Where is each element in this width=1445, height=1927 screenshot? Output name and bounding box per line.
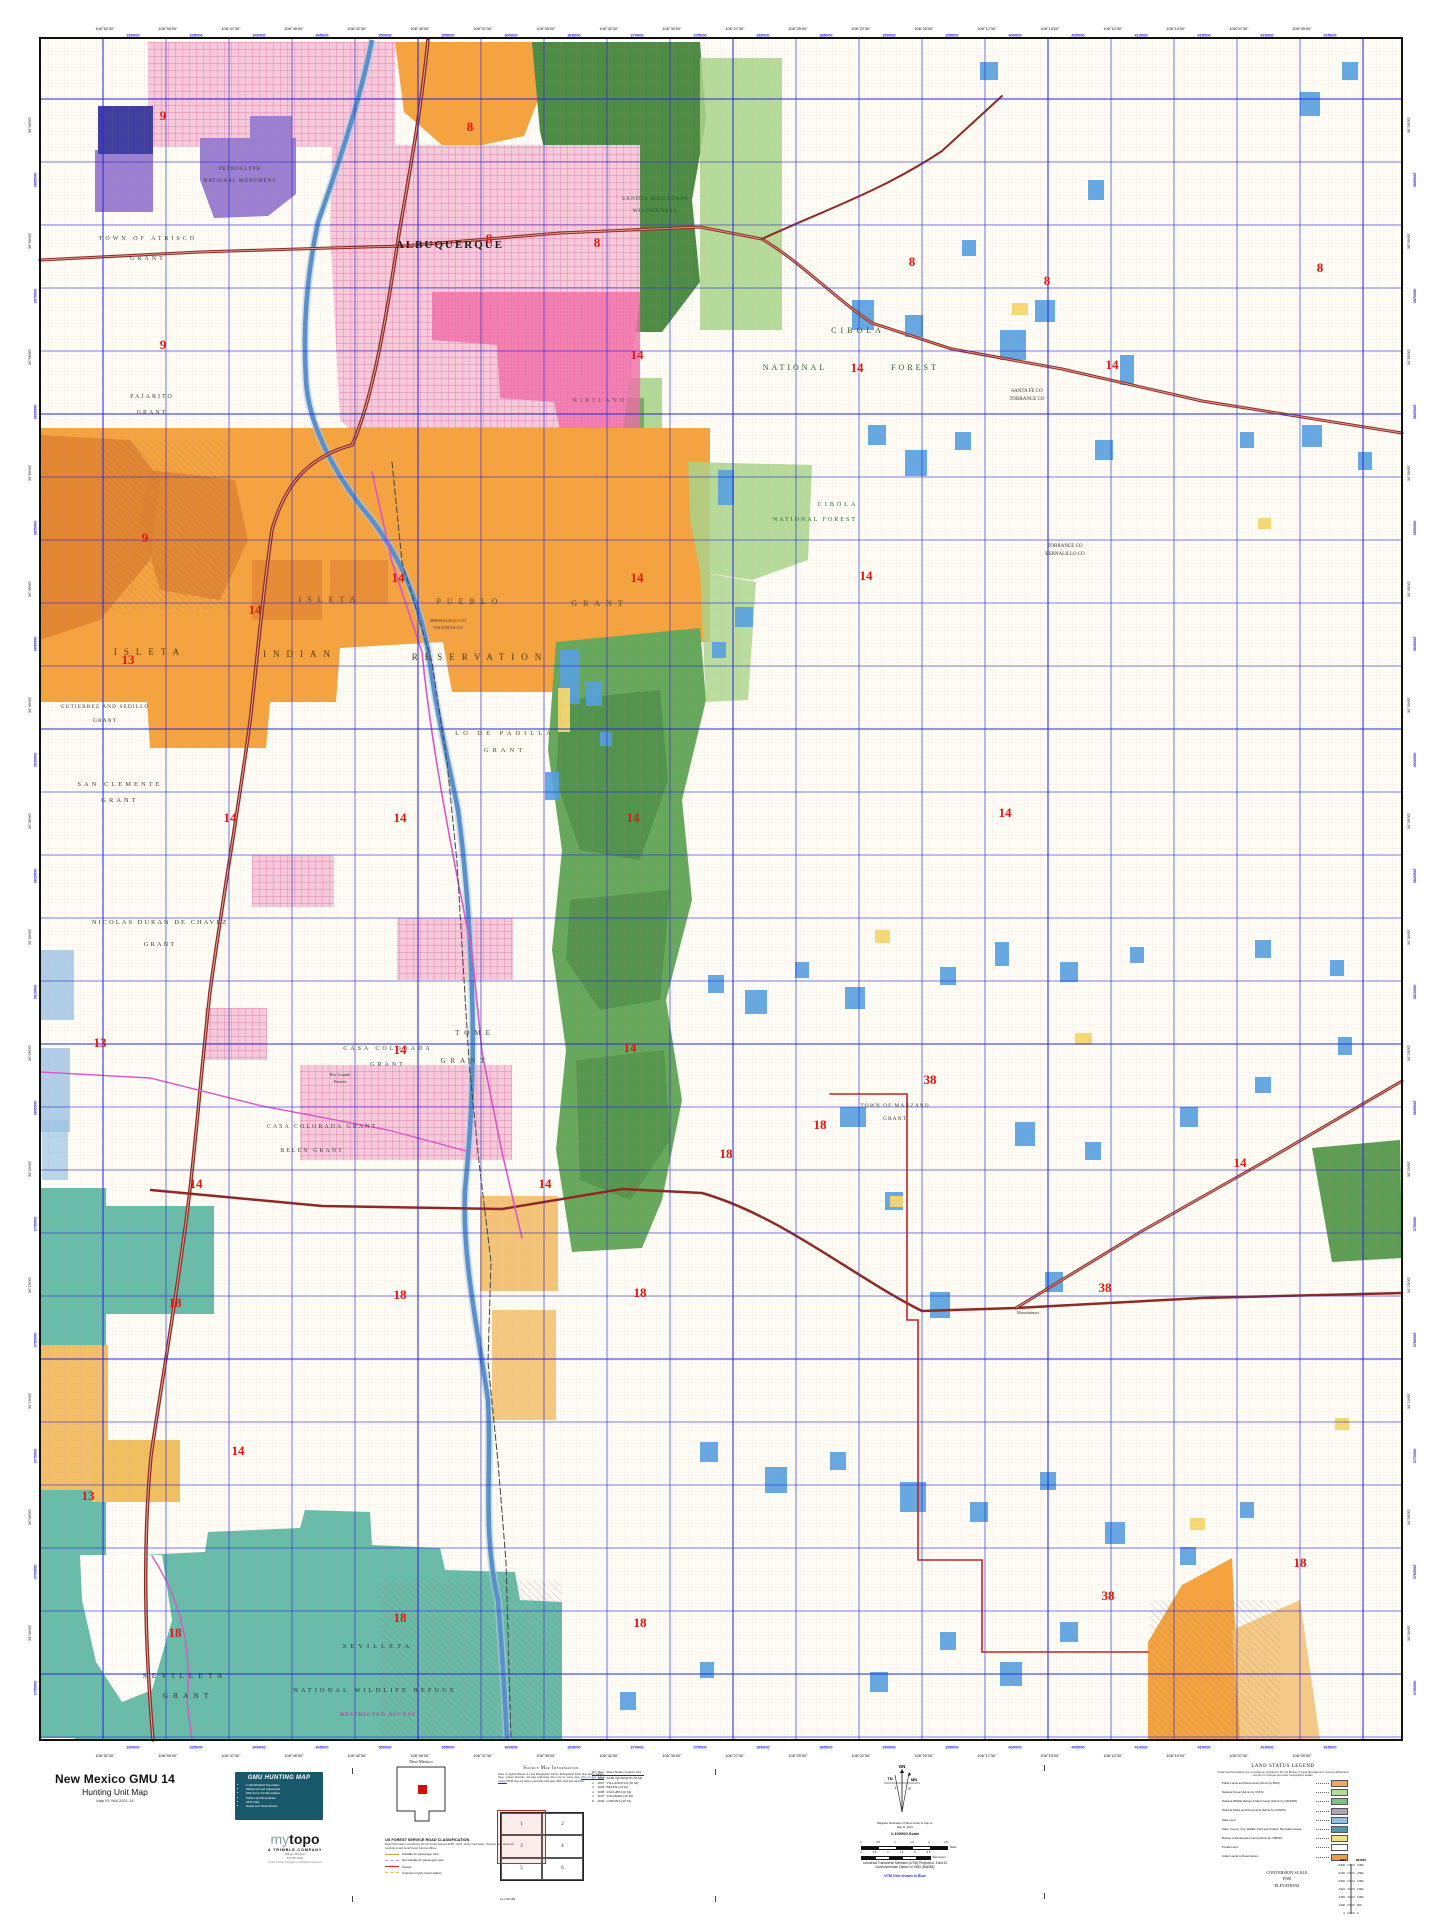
lat-label-left: 34°55'00" [28, 348, 32, 365]
lon-label-bottom: 106°32'30" [599, 1753, 619, 1758]
lon-label-bottom: 106°17'30" [977, 1753, 997, 1758]
hills-hatch-2 [1150, 1600, 1280, 1740]
gmu-number-14: 14 [190, 1176, 204, 1191]
lon-label-bottom: 106°50'00" [158, 1753, 178, 1758]
lat-label-right: 34°00'00" [1407, 1624, 1411, 1641]
place-label: NATIONAL WILDLIFE REFUGE [293, 1687, 457, 1694]
gmu-number-8: 8 [467, 119, 474, 134]
place-label: GRANT [571, 599, 629, 608]
lat-label-right: 34°15'00" [1407, 1276, 1411, 1293]
utm-north-label-left: 3795000 [34, 1217, 38, 1232]
lat-label-left: 35°00'00" [28, 232, 32, 249]
utm-east-label-bottom: 390000 [882, 1745, 896, 1750]
lat-label-right: 34°45'00" [1407, 580, 1411, 597]
gmu-number-38: 38 [924, 1072, 938, 1087]
utm-north-label-left: 3865000 [34, 405, 38, 420]
place-label: TOWN OF MANZANO [860, 1103, 929, 1109]
utm-north-label-right: 3865000 [1413, 405, 1417, 420]
gmu-number-8: 8 [486, 231, 493, 246]
lon-label-top: 106°10'00" [1166, 26, 1186, 31]
utm-east-label-top: 345000 [315, 33, 329, 38]
place-label: GRANT [93, 718, 117, 724]
utm-north-label-right: 3835000 [1413, 753, 1417, 768]
utm-east-label-bottom: 375000 [693, 1745, 707, 1750]
utm-east-label-bottom: 395000 [945, 1745, 959, 1750]
gmu-number-13: 13 [94, 1035, 108, 1050]
gmu-number-9: 9 [160, 108, 167, 123]
lon-label-bottom: 106°20'00" [914, 1753, 934, 1758]
place-label: GRANT [101, 797, 138, 804]
gmu-number-9: 9 [160, 337, 167, 352]
utm-north-label-left: 3815000 [34, 985, 38, 1000]
place-label: BERNALILLO CO [1045, 552, 1085, 557]
gmu-number-14: 14 [624, 1040, 638, 1055]
lat-label-left: 34°50'00" [28, 464, 32, 481]
lon-label-top: 106°30'00" [662, 26, 682, 31]
utm-north-label-left: 3855000 [34, 521, 38, 536]
gmu-number-18: 18 [169, 1625, 183, 1640]
utm-east-label-top: 425000 [1323, 33, 1337, 38]
gmu-number-13: 13 [122, 652, 136, 667]
lon-label-bottom: 106°12'30" [1103, 1753, 1123, 1758]
utm-east-label-top: 405000 [1071, 33, 1085, 38]
place-label: TOWN OF ATRISCO [99, 236, 197, 242]
lon-label-top: 106°40'00" [410, 26, 430, 31]
gmu-number-18: 18 [634, 1285, 648, 1300]
utm-east-label-bottom: 340000 [252, 1745, 266, 1750]
gmu-number-14: 14 [1234, 1155, 1248, 1170]
gmu-number-14: 14 [631, 570, 645, 585]
gmu-number-18: 18 [720, 1146, 734, 1161]
utm-east-label-bottom: 355000 [441, 1745, 455, 1750]
lat-label-right: 34°50'00" [1407, 464, 1411, 481]
utm-east-label-top: 375000 [693, 33, 707, 38]
utm-east-label-bottom: 350000 [378, 1745, 392, 1750]
utm-east-label-bottom: 425000 [1323, 1745, 1337, 1750]
lat-label-left: 34°05'00" [28, 1508, 32, 1525]
lat-label-left: 34°35'00" [28, 812, 32, 829]
place-label: SANDIA MOUNTAIN [622, 196, 688, 202]
lat-label-left: 35°05'00" [28, 116, 32, 133]
utm-north-label-left: 3785000 [34, 1333, 38, 1348]
utm-north-label-right: 3825000 [1413, 869, 1417, 884]
place-label: GRANT [440, 1057, 489, 1065]
place-label: PETROGLYPH [219, 167, 261, 172]
utm-north-label-right: 3765000 [1413, 1565, 1417, 1580]
utm-north-label-left: 3755000 [34, 1681, 38, 1696]
place-label: Rio Grande [330, 1072, 351, 1077]
utm-east-label-bottom: 380000 [756, 1745, 770, 1750]
place-label: CIBOLA [818, 502, 858, 508]
lon-label-top: 106°25'00" [788, 26, 808, 31]
lon-label-top: 106°20'00" [914, 26, 934, 31]
utm-north-label-right: 3755000 [1413, 1681, 1417, 1696]
place-label: NATIONAL FOREST [773, 517, 857, 523]
lat-label-right: 34°25'00" [1407, 1044, 1411, 1061]
lon-label-bottom: 106°22'30" [851, 1753, 871, 1758]
utm-north-label-left: 3775000 [34, 1449, 38, 1464]
lon-label-top: 106°47'30" [221, 26, 241, 31]
utm-north-label-right: 3815000 [1413, 985, 1417, 1000]
lon-label-top: 106°52'30" [95, 26, 115, 31]
gmu-number-18: 18 [394, 1610, 408, 1625]
place-label: KIRTLAND [573, 398, 627, 404]
place-label: CIBOLA [831, 326, 885, 335]
place-label: TORRANCE CO [1047, 544, 1082, 549]
gmu-number-8: 8 [1044, 273, 1051, 288]
utm-north-label-left: 3805000 [34, 1101, 38, 1116]
utm-east-label-top: 385000 [819, 33, 833, 38]
lon-label-bottom: 106°42'30" [347, 1753, 367, 1758]
gmu-number-14: 14 [627, 810, 641, 825]
utm-north-label-left: 3845000 [34, 637, 38, 652]
utm-east-label-top: 410000 [1134, 33, 1148, 38]
gmu-number-38: 38 [1102, 1588, 1116, 1603]
lon-label-bottom: 106°05'00" [1292, 1753, 1312, 1758]
lon-label-top: 106°07'30" [1229, 26, 1249, 31]
utm-east-label-top: 395000 [945, 33, 959, 38]
place-label: RESERVATION [412, 652, 549, 662]
utm-north-label-right: 3885000 [1413, 173, 1417, 188]
place-label: CASA COLORADA [343, 1046, 433, 1052]
place-label: TOME [455, 1029, 495, 1037]
place-label: FOREST [891, 363, 939, 372]
lat-label-right: 35°05'00" [1407, 116, 1411, 133]
lon-label-bottom: 106°30'00" [662, 1753, 682, 1758]
lat-label-right: 34°35'00" [1407, 812, 1411, 829]
place-label: GRANT [130, 256, 166, 262]
utm-east-label-top: 365000 [567, 33, 581, 38]
place-label: WILDERNESS [633, 208, 678, 214]
gmu-number-14: 14 [631, 347, 645, 362]
gmu-number-14: 14 [224, 810, 238, 825]
lon-label-top: 106°32'30" [599, 26, 619, 31]
utm-east-label-bottom: 365000 [567, 1745, 581, 1750]
lat-label-right: 34°05'00" [1407, 1508, 1411, 1525]
utm-north-label-right: 3775000 [1413, 1449, 1417, 1464]
utm-east-label-bottom: 360000 [504, 1745, 518, 1750]
gmu-number-14: 14 [851, 360, 865, 375]
lon-label-bottom: 106°27'30" [725, 1753, 745, 1758]
place-label: SAN CLEMENTE [77, 781, 162, 788]
place-label: RESTRICTED ACCESS [340, 1712, 416, 1718]
gmu-number-14: 14 [1106, 357, 1120, 372]
utm-east-label-bottom: 405000 [1071, 1745, 1085, 1750]
utm-east-label-bottom: 330000 [126, 1745, 140, 1750]
place-label: Estates [334, 1079, 347, 1084]
gmu-number-18: 18 [394, 1287, 408, 1302]
lon-label-top: 106°50'00" [158, 26, 178, 31]
lat-label-left: 34°30'00" [28, 928, 32, 945]
place-label: PUEBLO [436, 597, 503, 606]
place-label: GRANT [163, 1691, 214, 1700]
utm-east-label-top: 370000 [630, 33, 644, 38]
place-label: ISLETA [299, 595, 362, 604]
utm-east-label-top: 415000 [1197, 33, 1211, 38]
lat-label-right: 35°00'00" [1407, 232, 1411, 249]
lat-label-right: 34°40'00" [1407, 696, 1411, 713]
utm-north-label-right: 3855000 [1413, 521, 1417, 536]
utm-east-label-bottom: 385000 [819, 1745, 833, 1750]
place-label: GRANT [137, 410, 168, 416]
place-label: GUTIERREZ AND SEDILLO [61, 704, 150, 710]
utm-north-label-right: 3875000 [1413, 289, 1417, 304]
lon-label-bottom: 106°07'30" [1229, 1753, 1249, 1758]
map-canvas: 106°52'30"106°52'30"106°50'00"106°50'00"… [0, 0, 1445, 1927]
place-label: NICOLAS DURAN DE CHAVEZ [92, 919, 228, 926]
lon-label-bottom: 106°47'30" [221, 1753, 241, 1758]
utm-east-label-top: 330000 [126, 33, 140, 38]
utm-north-label-left: 3825000 [34, 869, 38, 884]
gmu-number-14: 14 [394, 1042, 408, 1057]
lat-label-left: 34°25'00" [28, 1044, 32, 1061]
lon-label-top: 106°45'00" [284, 26, 304, 31]
lon-label-top: 106°22'30" [851, 26, 871, 31]
lon-label-top: 106°37'30" [473, 26, 493, 31]
utm-east-label-bottom: 410000 [1134, 1745, 1148, 1750]
place-label: GRANT [144, 941, 176, 948]
lon-label-top: 106°05'00" [1292, 26, 1312, 31]
place-label: NATIONAL [763, 363, 827, 372]
place-label: BERNALILLO CO [430, 618, 466, 623]
utm-north-label-right: 3785000 [1413, 1333, 1417, 1348]
lat-label-left: 34°00'00" [28, 1624, 32, 1641]
lon-label-top: 106°12'30" [1103, 26, 1123, 31]
utm-north-label-left: 3885000 [34, 173, 38, 188]
utm-north-label-left: 3835000 [34, 753, 38, 768]
lat-label-right: 34°55'00" [1407, 348, 1411, 365]
gmu-number-14: 14 [539, 1176, 553, 1191]
gmu-number-8: 8 [594, 235, 601, 250]
utm-north-label-right: 3845000 [1413, 637, 1417, 652]
utm-north-label-right: 3795000 [1413, 1217, 1417, 1232]
gmu-number-13: 13 [82, 1488, 96, 1503]
utm-north-label-left: 3765000 [34, 1565, 38, 1580]
utm-east-label-top: 380000 [756, 33, 770, 38]
gmu-number-14: 14 [249, 602, 263, 617]
lat-label-right: 34°20'00" [1407, 1160, 1411, 1177]
place-label: INDIAN [263, 649, 337, 659]
utm-east-label-bottom: 400000 [1008, 1745, 1022, 1750]
lat-label-left: 34°40'00" [28, 696, 32, 713]
gmu-number-9: 9 [142, 530, 149, 545]
lon-label-bottom: 106°45'00" [284, 1753, 304, 1758]
gmu-number-14: 14 [394, 810, 408, 825]
place-label: NATIONAL MONUMENT [204, 179, 277, 184]
gmu-number-18: 18 [814, 1117, 828, 1132]
place-label: SEVILLETA [343, 1643, 414, 1650]
gmu-number-14: 14 [392, 570, 406, 585]
lon-label-top: 106°42'30" [347, 26, 367, 31]
place-label: SANTA FE CO [1011, 389, 1043, 394]
utm-north-label-left: 3875000 [34, 289, 38, 304]
gmu-number-14: 14 [999, 805, 1013, 820]
gmu-number-8: 8 [909, 254, 916, 269]
lon-label-bottom: 106°40'00" [410, 1753, 430, 1758]
place-label: GRANT [484, 747, 526, 754]
place-label: GRANT [370, 1062, 406, 1068]
gmu-number-18: 18 [169, 1295, 183, 1310]
place-label: PAJARITO [130, 394, 174, 400]
lon-label-bottom: 106°25'00" [788, 1753, 808, 1758]
utm-east-label-top: 420000 [1260, 33, 1274, 38]
lon-label-bottom: 106°35'00" [536, 1753, 556, 1758]
lon-label-bottom: 106°52'30" [95, 1753, 115, 1758]
utm-east-label-top: 400000 [1008, 33, 1022, 38]
lon-label-top: 106°17'30" [977, 26, 997, 31]
utm-east-label-top: 360000 [504, 33, 518, 38]
utm-east-label-bottom: 370000 [630, 1745, 644, 1750]
gmu-number-18: 18 [634, 1615, 648, 1630]
lon-label-top: 106°35'00" [536, 26, 556, 31]
utm-east-label-top: 350000 [378, 33, 392, 38]
lat-label-right: 34°30'00" [1407, 928, 1411, 945]
lat-label-left: 34°15'00" [28, 1276, 32, 1293]
utm-east-label-top: 335000 [189, 33, 203, 38]
utm-north-label-right: 3805000 [1413, 1101, 1417, 1116]
lat-label-left: 34°10'00" [28, 1392, 32, 1409]
place-label: BELEN GRANT [280, 1148, 344, 1154]
place-label: CASA COLORADA GRANT [267, 1124, 377, 1130]
lon-label-bottom: 106°15'00" [1040, 1753, 1060, 1758]
lon-label-bottom: 106°10'00" [1166, 1753, 1186, 1758]
place-label: Mountainair [1017, 1310, 1040, 1315]
utm-east-label-bottom: 420000 [1260, 1745, 1274, 1750]
place-label: LO DE PADILLA [455, 730, 555, 737]
utm-east-label-bottom: 415000 [1197, 1745, 1211, 1750]
place-label: SEVILLETA [143, 1671, 228, 1680]
hills-hatch-3 [100, 440, 230, 610]
gmu-number-18: 18 [1294, 1555, 1308, 1570]
utm-east-label-bottom: 345000 [315, 1745, 329, 1750]
place-label: VALENCIA CO [433, 625, 463, 630]
lat-label-left: 34°20'00" [28, 1160, 32, 1177]
place-label: TORRANCE CO [1009, 397, 1044, 402]
utm-east-label-top: 390000 [882, 33, 896, 38]
lat-label-left: 34°45'00" [28, 580, 32, 597]
gmu-number-38: 38 [1099, 1280, 1113, 1295]
gmu-number-14: 14 [860, 568, 874, 583]
utm-east-label-top: 340000 [252, 33, 266, 38]
gmu-number-8: 8 [1317, 260, 1324, 275]
lon-label-bottom: 106°37'30" [473, 1753, 493, 1758]
place-label: GRANT [883, 1116, 907, 1122]
utm-east-label-bottom: 335000 [189, 1745, 203, 1750]
gmu-number-14: 14 [232, 1443, 246, 1458]
lat-label-right: 34°10'00" [1407, 1392, 1411, 1409]
utm-east-label-top: 355000 [441, 33, 455, 38]
lon-label-top: 106°15'00" [1040, 26, 1060, 31]
lon-label-top: 106°27'30" [725, 26, 745, 31]
